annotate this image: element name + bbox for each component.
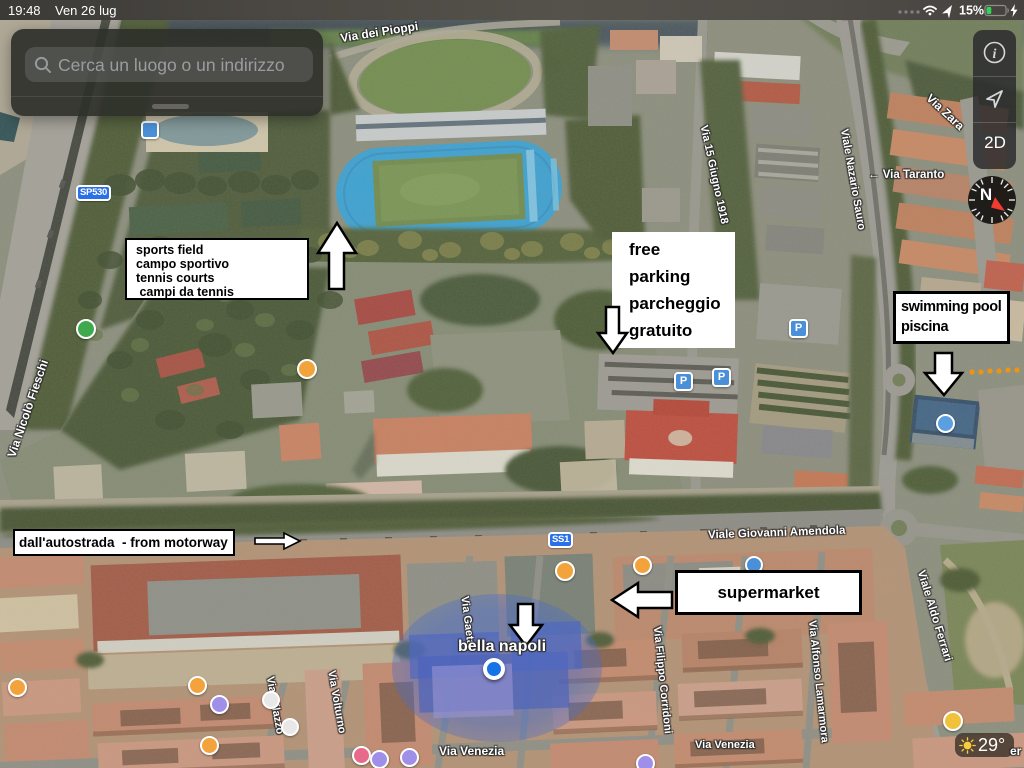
svg-text:N: N <box>980 185 992 204</box>
svg-text:i: i <box>993 47 997 62</box>
svg-text:15%: 15% <box>959 4 984 18</box>
